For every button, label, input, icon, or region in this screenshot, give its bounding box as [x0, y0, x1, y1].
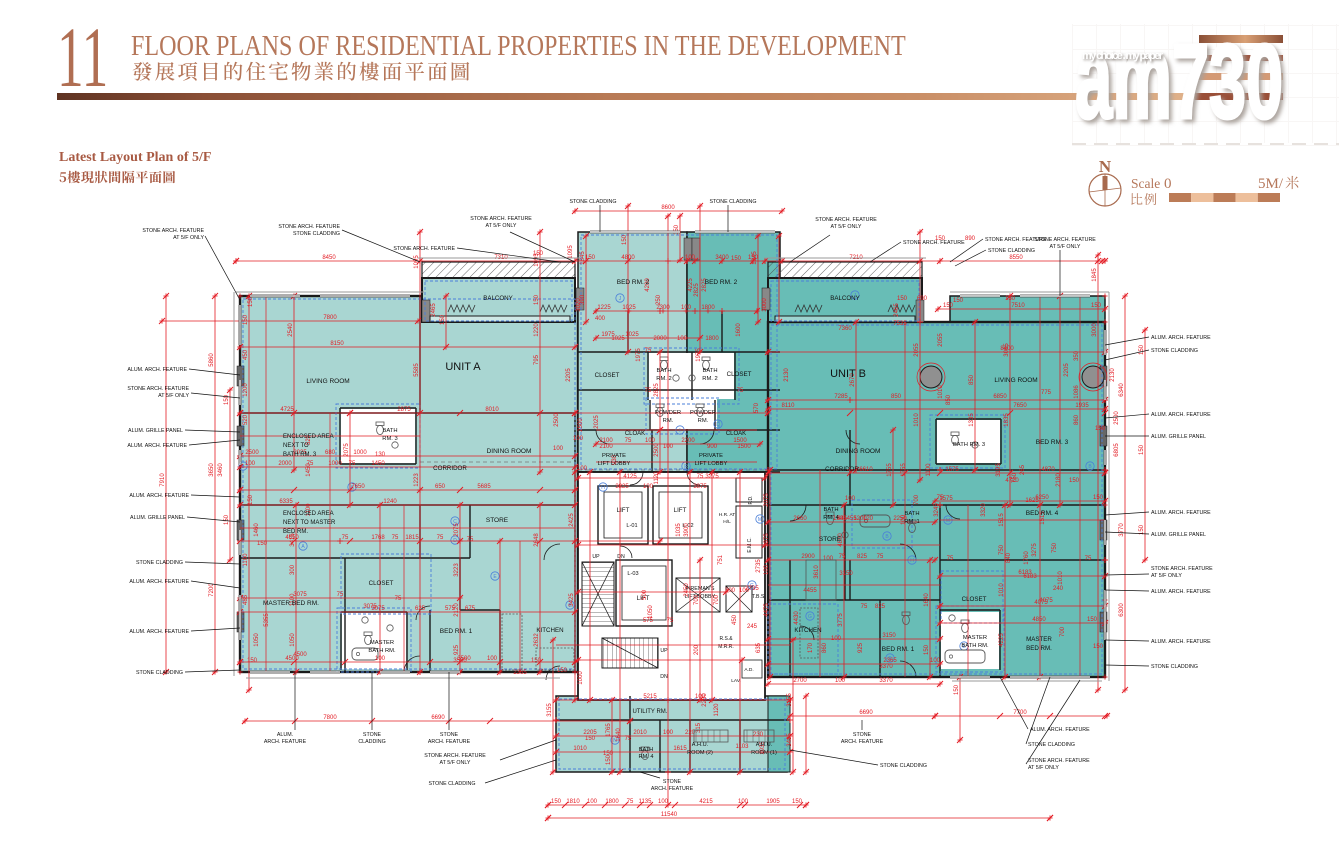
svg-text:825: 825 — [857, 554, 868, 560]
svg-text:4125: 4125 — [623, 474, 637, 480]
svg-text:ALUM. GRILLE PANEL: ALUM. GRILLE PANEL — [130, 515, 185, 521]
svg-text:1640: 1640 — [924, 593, 930, 607]
svg-text:H: H — [601, 485, 605, 491]
svg-text:850: 850 — [946, 394, 952, 405]
svg-text:890: 890 — [965, 236, 976, 242]
svg-text:CLADDING: CLADDING — [358, 739, 385, 745]
svg-text:H: H — [910, 558, 914, 564]
svg-text:2205: 2205 — [583, 730, 597, 736]
svg-text:485: 485 — [243, 594, 249, 605]
svg-text:NEXT TO: NEXT TO — [283, 443, 309, 449]
svg-text:7510: 7510 — [1011, 303, 1025, 309]
svg-text:T.B.S.: T.B.S. — [752, 594, 766, 600]
svg-text:1025: 1025 — [611, 336, 625, 342]
svg-text:7800: 7800 — [323, 715, 337, 721]
svg-text:5685: 5685 — [477, 484, 491, 490]
svg-text:3150: 3150 — [882, 633, 896, 639]
svg-text:1035: 1035 — [676, 523, 682, 537]
svg-text:315: 315 — [696, 722, 702, 733]
svg-text:3650: 3650 — [209, 463, 215, 477]
svg-text:700: 700 — [914, 494, 920, 505]
svg-text:STONE CLADDING: STONE CLADDING — [136, 670, 183, 676]
svg-text:1000: 1000 — [578, 671, 584, 685]
svg-text:100: 100 — [764, 564, 770, 575]
svg-text:2000: 2000 — [653, 336, 667, 342]
svg-text:MASTER: MASTER — [1026, 636, 1052, 643]
svg-text:3770: 3770 — [1119, 523, 1125, 537]
svg-text:1975: 1975 — [696, 348, 702, 362]
svg-text:ALUM. ARCH. FEATURE: ALUM. ARCH. FEATURE — [129, 493, 189, 499]
svg-text:750: 750 — [1052, 542, 1058, 553]
svg-text:H/L: H/L — [723, 519, 731, 525]
svg-text:6805: 6805 — [1114, 443, 1120, 457]
svg-text:4720: 4720 — [1005, 478, 1019, 484]
svg-text:2250: 2250 — [702, 693, 708, 707]
svg-text:RM. 2: RM. 2 — [702, 376, 717, 382]
svg-text:100: 100 — [587, 799, 598, 805]
svg-text:450: 450 — [243, 349, 249, 360]
svg-text:1335: 1335 — [969, 413, 975, 427]
svg-text:STONE CLADDING: STONE CLADDING — [1151, 348, 1198, 354]
svg-text:RM. 2: RM. 2 — [656, 376, 671, 382]
svg-text:6340: 6340 — [1119, 383, 1125, 397]
svg-text:150: 150 — [1093, 644, 1104, 650]
svg-text:7650: 7650 — [1013, 403, 1027, 409]
svg-text:6300: 6300 — [1119, 603, 1125, 617]
svg-text:860: 860 — [822, 642, 828, 653]
svg-text:1220: 1220 — [534, 323, 540, 337]
svg-text:675: 675 — [465, 606, 476, 612]
svg-text:75: 75 — [645, 388, 652, 394]
svg-text:A.D.: A.D. — [744, 667, 753, 673]
svg-text:1500: 1500 — [733, 438, 747, 444]
svg-text:STORE: STORE — [486, 517, 509, 524]
svg-text:1200: 1200 — [243, 383, 249, 397]
svg-text:8110: 8110 — [782, 403, 796, 409]
svg-text:75: 75 — [947, 556, 954, 562]
svg-text:LIVING ROOM: LIVING ROOM — [994, 377, 1037, 384]
svg-text:570: 570 — [754, 402, 760, 413]
svg-text:STONE ARCH. FEATURE: STONE ARCH. FEATURE — [1034, 237, 1096, 243]
svg-text:100: 100 — [738, 799, 749, 805]
svg-text:900: 900 — [707, 444, 718, 450]
svg-text:BED RM. 2: BED RM. 2 — [617, 279, 650, 286]
svg-text:NEXT TO MASTER: NEXT TO MASTER — [283, 520, 336, 526]
svg-text:4215: 4215 — [699, 799, 713, 805]
svg-text:BATH: BATH — [639, 747, 654, 753]
svg-text:1000: 1000 — [353, 450, 367, 456]
svg-text:STONE CLADDING: STONE CLADDING — [570, 199, 617, 205]
svg-text:AT 5/F ONLY: AT 5/F ONLY — [158, 393, 189, 399]
svg-text:3223: 3223 — [454, 563, 460, 577]
svg-text:4725: 4725 — [280, 407, 294, 413]
svg-text:1095: 1095 — [568, 245, 574, 259]
svg-text:7200: 7200 — [209, 583, 215, 597]
svg-text:75: 75 — [697, 474, 704, 480]
svg-text:STONE ARCH. FEATURE: STONE ARCH. FEATURE — [278, 224, 340, 230]
svg-text:1640: 1640 — [616, 728, 622, 742]
svg-text:1575: 1575 — [945, 467, 959, 473]
svg-text:1010: 1010 — [938, 385, 944, 399]
svg-text:2075: 2075 — [454, 523, 460, 537]
svg-text:STONE: STONE — [363, 732, 382, 738]
svg-text:M: M — [946, 518, 950, 524]
svg-text:5860: 5860 — [209, 353, 215, 367]
svg-text:2500: 2500 — [245, 450, 259, 456]
svg-text:2500: 2500 — [554, 413, 560, 427]
svg-text:LAV.: LAV. — [731, 678, 741, 684]
svg-text:300: 300 — [290, 564, 296, 575]
svg-text:2500: 2500 — [1114, 411, 1120, 425]
svg-text:75: 75 — [861, 604, 868, 610]
svg-text:4455: 4455 — [803, 588, 817, 594]
svg-text:4225: 4225 — [999, 633, 1005, 647]
svg-text:STONE CLADDING: STONE CLADDING — [1028, 742, 1075, 748]
svg-text:4870: 4870 — [1041, 467, 1055, 473]
svg-text:100: 100 — [487, 656, 498, 662]
svg-text:150: 150 — [247, 658, 258, 664]
svg-text:L-03: L-03 — [627, 571, 638, 577]
svg-text:2055: 2055 — [938, 333, 944, 347]
svg-text:STORE: STORE — [819, 536, 842, 543]
svg-text:3000: 3000 — [762, 298, 768, 312]
svg-text:1000: 1000 — [328, 461, 342, 467]
svg-text:150: 150 — [224, 394, 230, 405]
svg-text:75: 75 — [395, 596, 402, 602]
svg-text:ARCH. FEATURE: ARCH. FEATURE — [651, 786, 694, 792]
svg-text:BATH RM.: BATH RM. — [961, 643, 989, 649]
svg-text:150: 150 — [440, 314, 446, 325]
svg-text:650: 650 — [435, 484, 446, 490]
svg-text:H.R. AT: H.R. AT — [719, 512, 736, 518]
svg-text:STONE: STONE — [663, 779, 682, 785]
svg-text:R.S.&: R.S.& — [719, 636, 733, 642]
svg-text:ARCH. FEATURE: ARCH. FEATURE — [841, 739, 884, 745]
svg-text:1760: 1760 — [1024, 551, 1030, 565]
svg-text:75: 75 — [467, 537, 474, 543]
svg-text:1050: 1050 — [648, 605, 654, 619]
svg-text:1755: 1755 — [887, 463, 893, 477]
svg-text:150: 150 — [533, 251, 544, 257]
svg-text:BED RM. 3: BED RM. 3 — [1036, 439, 1069, 446]
svg-text:120: 120 — [863, 516, 874, 522]
svg-text:POWDER: POWDER — [690, 410, 716, 416]
svg-text:1905: 1905 — [766, 799, 780, 805]
svg-text:3245: 3245 — [934, 503, 940, 517]
svg-text:RM.: RM. — [698, 418, 709, 424]
svg-text:I: I — [679, 428, 680, 434]
svg-text:700: 700 — [1060, 626, 1066, 637]
svg-text:400: 400 — [595, 316, 606, 322]
svg-text:BATH: BATH — [382, 428, 397, 434]
svg-text:100: 100 — [245, 461, 256, 467]
svg-text:4500: 4500 — [293, 652, 307, 658]
svg-text:STONE ARCH. FEATURE: STONE ARCH. FEATURE — [1028, 758, 1090, 764]
svg-text:RM. 3: RM. 3 — [382, 436, 397, 442]
svg-text:3195: 3195 — [996, 463, 1002, 477]
svg-text:700: 700 — [714, 594, 720, 605]
svg-text:3485: 3485 — [787, 733, 793, 747]
svg-text:450: 450 — [732, 614, 738, 625]
svg-text:7285: 7285 — [834, 394, 848, 400]
svg-text:1810: 1810 — [566, 799, 580, 805]
svg-text:STONE CLADDING: STONE CLADDING — [429, 781, 476, 787]
svg-text:100: 100 — [645, 438, 656, 444]
svg-text:2700: 2700 — [793, 678, 807, 684]
svg-text:8010: 8010 — [485, 407, 499, 413]
svg-text:1103: 1103 — [736, 744, 750, 750]
svg-text:AT 5/F ONLY: AT 5/F ONLY — [1151, 573, 1182, 579]
svg-text:2660: 2660 — [793, 516, 807, 522]
svg-text:150: 150 — [248, 494, 254, 505]
svg-text:2055: 2055 — [914, 343, 920, 357]
svg-text:2500: 2500 — [578, 418, 584, 432]
svg-text:AT 5/F ONLY: AT 5/F ONLY — [1028, 765, 1059, 771]
svg-text:150: 150 — [897, 296, 908, 302]
svg-text:3000: 3000 — [1092, 323, 1098, 337]
svg-text:775: 775 — [1041, 390, 1052, 396]
svg-text:2075: 2075 — [344, 443, 350, 457]
svg-text:250: 250 — [656, 294, 662, 305]
svg-text:6690: 6690 — [859, 710, 873, 716]
svg-text:1800: 1800 — [705, 336, 719, 342]
svg-text:POWDER: POWDER — [655, 410, 681, 416]
svg-text:BATH RM.: BATH RM. — [368, 648, 396, 654]
svg-text:D: D — [716, 422, 720, 428]
svg-text:UNIT A: UNIT A — [445, 361, 481, 373]
svg-text:PRIVATE: PRIVATE — [699, 453, 723, 459]
svg-text:150: 150 — [1069, 478, 1080, 484]
svg-text:3075: 3075 — [363, 604, 377, 610]
svg-text:CLOSET: CLOSET — [962, 596, 987, 603]
svg-text:1225: 1225 — [597, 305, 611, 311]
svg-text:BATH: BATH — [702, 368, 717, 374]
svg-text:R: R — [684, 464, 688, 470]
svg-text:75: 75 — [342, 535, 349, 541]
svg-text:STONE ARCH. FEATURE: STONE ARCH. FEATURE — [1151, 566, 1213, 572]
svg-text:150: 150 — [557, 668, 568, 674]
svg-text:AT 5/F ONLY: AT 5/F ONLY — [440, 760, 471, 766]
svg-text:3065: 3065 — [1004, 343, 1010, 357]
svg-text:BED RM. 2: BED RM. 2 — [705, 279, 738, 286]
svg-text:751: 751 — [718, 554, 724, 565]
svg-text:CLOSET: CLOSET — [595, 372, 620, 379]
svg-text:6183: 6183 — [1023, 574, 1037, 580]
svg-text:LIFT: LIFT — [674, 507, 687, 514]
svg-text:2825: 2825 — [694, 283, 700, 297]
svg-text:AT 5/F ONLY: AT 5/F ONLY — [1050, 244, 1081, 250]
svg-text:STONE CLADDING: STONE CLADDING — [988, 248, 1035, 254]
svg-text:CLOAK: CLOAK — [726, 431, 746, 437]
svg-text:6335: 6335 — [279, 499, 293, 505]
svg-text:STONE CLADDING: STONE CLADDING — [293, 231, 340, 237]
svg-text:7360: 7360 — [838, 326, 852, 332]
svg-text:100: 100 — [577, 466, 588, 472]
svg-text:3370: 3370 — [879, 664, 893, 670]
svg-text:2632: 2632 — [534, 633, 540, 647]
svg-text:ALUM.: ALUM. — [277, 732, 293, 738]
svg-text:75: 75 — [337, 592, 344, 598]
svg-text:130: 130 — [375, 452, 386, 458]
svg-text:2900: 2900 — [801, 554, 815, 560]
svg-text:1768: 1768 — [371, 535, 385, 541]
svg-text:8550: 8550 — [1009, 255, 1023, 261]
svg-text:STONE ARCH. FEATURE: STONE ARCH. FEATURE — [127, 386, 189, 392]
svg-text:150: 150 — [1091, 303, 1102, 309]
svg-text:1845: 1845 — [1092, 268, 1098, 282]
svg-text:1450: 1450 — [306, 463, 312, 477]
svg-text:5215: 5215 — [643, 694, 657, 700]
svg-text:3900: 3900 — [684, 523, 690, 537]
svg-text:STONE ARCH. FEATURE: STONE ARCH. FEATURE — [393, 246, 455, 252]
svg-text:3155: 3155 — [547, 703, 553, 717]
svg-text:1800: 1800 — [605, 799, 619, 805]
svg-text:PRIVATE: PRIVATE — [602, 453, 626, 459]
svg-text:AT 5/F ONLY: AT 5/F ONLY — [831, 224, 862, 230]
svg-text:STONE ARCH. FEATURE: STONE ARCH. FEATURE — [470, 216, 532, 222]
svg-text:100: 100 — [930, 658, 941, 664]
svg-text:ALUM. GRILLE PANEL: ALUM. GRILLE PANEL — [1151, 434, 1206, 440]
svg-text:75: 75 — [877, 554, 884, 560]
svg-text:7800: 7800 — [323, 315, 337, 321]
svg-text:2465: 2465 — [894, 303, 900, 317]
svg-text:3155: 3155 — [787, 693, 793, 707]
svg-text:ROOM (2): ROOM (2) — [687, 750, 713, 756]
svg-text:75: 75 — [839, 554, 846, 560]
svg-text:A.H.U.: A.H.U. — [756, 742, 773, 748]
svg-text:3020: 3020 — [576, 298, 582, 312]
svg-text:1615: 1615 — [673, 746, 687, 752]
svg-text:230: 230 — [753, 732, 764, 738]
svg-text:1500: 1500 — [737, 444, 751, 450]
svg-text:CORRIDOR: CORRIDOR — [825, 466, 859, 473]
svg-text:1575: 1575 — [939, 496, 953, 502]
svg-text:825: 825 — [875, 604, 886, 610]
svg-text:3425: 3425 — [569, 593, 575, 607]
svg-text:UNIT B: UNIT B — [830, 368, 866, 380]
svg-text:7910: 7910 — [160, 473, 166, 487]
svg-text:CORRIDOR: CORRIDOR — [433, 465, 467, 472]
svg-text:840: 840 — [1006, 552, 1012, 563]
svg-text:BATH: BATH — [904, 511, 919, 517]
svg-text:750: 750 — [999, 544, 1005, 555]
svg-text:KITCHEN: KITCHEN — [536, 627, 563, 634]
svg-text:4850: 4850 — [1032, 617, 1046, 623]
svg-text:BED RM. 1: BED RM. 1 — [882, 646, 915, 653]
svg-text:ALUM. ARCH. FEATURE: ALUM. ARCH. FEATURE — [129, 629, 189, 635]
svg-text:6690: 6690 — [431, 715, 445, 721]
svg-text:STONE: STONE — [853, 732, 872, 738]
svg-text:850: 850 — [891, 394, 902, 400]
svg-text:ROOM (1): ROOM (1) — [751, 750, 777, 756]
svg-text:ALUM. ARCH. FEATURE: ALUM. ARCH. FEATURE — [1030, 727, 1090, 733]
svg-text:ARCH. FEATURE: ARCH. FEATURE — [264, 739, 307, 745]
svg-text:1010: 1010 — [914, 413, 920, 427]
svg-text:1010: 1010 — [999, 583, 1005, 597]
svg-text:AT 5/F ONLY: AT 5/F ONLY — [173, 235, 204, 241]
svg-text:150: 150 — [622, 234, 628, 245]
svg-text:575: 575 — [643, 618, 654, 624]
svg-text:925: 925 — [858, 642, 864, 653]
svg-text:3320: 3320 — [981, 503, 987, 517]
svg-text:3275: 3275 — [705, 474, 719, 480]
svg-text:4475: 4475 — [764, 603, 770, 617]
svg-text:STONE CLADDING: STONE CLADDING — [1151, 664, 1198, 670]
svg-text:2130: 2130 — [784, 368, 790, 382]
svg-text:ALUM. ARCH. FEATURE: ALUM. ARCH. FEATURE — [1151, 589, 1211, 595]
svg-text:8600: 8600 — [661, 205, 675, 211]
svg-text:DN: DN — [660, 674, 668, 680]
svg-text:635: 635 — [756, 642, 762, 653]
svg-text:6850: 6850 — [993, 394, 1007, 400]
svg-text:ENCLOSED AREA: ENCLOSED AREA — [283, 434, 334, 440]
svg-text:4225: 4225 — [688, 278, 694, 292]
svg-text:AT 5/F ONLY: AT 5/F ONLY — [486, 223, 517, 229]
svg-text:CLOAK: CLOAK — [625, 431, 645, 437]
svg-text:2825: 2825 — [654, 383, 660, 397]
svg-text:1100: 1100 — [926, 463, 932, 477]
svg-text:1625: 1625 — [1025, 498, 1039, 504]
svg-text:RM.: RM. — [663, 418, 674, 424]
svg-text:ALUM. ARCH. FEATURE: ALUM. ARCH. FEATURE — [127, 443, 187, 449]
svg-text:200: 200 — [694, 644, 700, 655]
svg-text:75: 75 — [737, 388, 744, 394]
svg-text:170: 170 — [808, 642, 814, 653]
svg-text:75: 75 — [437, 535, 444, 541]
svg-text:P.D.: P.D. — [748, 495, 754, 504]
svg-text:ALUM. ARCH. FEATURE: ALUM. ARCH. FEATURE — [1151, 335, 1211, 341]
svg-text:CLOSET: CLOSET — [727, 371, 752, 378]
svg-text:STONE CLADDING: STONE CLADDING — [136, 560, 183, 566]
svg-text:150: 150 — [224, 514, 230, 525]
svg-text:BATH RM. 3: BATH RM. 3 — [283, 452, 317, 458]
svg-text:ARCH. FEATURE: ARCH. FEATURE — [428, 739, 471, 745]
svg-text:ALUM. ARCH. FEATURE: ALUM. ARCH. FEATURE — [1151, 510, 1211, 516]
svg-text:1815: 1815 — [405, 535, 419, 541]
svg-text:1223: 1223 — [414, 473, 420, 487]
svg-text:BED RM.: BED RM. — [1026, 645, 1052, 652]
svg-text:150: 150 — [551, 799, 562, 805]
svg-text:RM. 4: RM. 4 — [823, 515, 839, 521]
svg-text:MASTER BED RM.: MASTER BED RM. — [263, 600, 319, 607]
svg-text:UP: UP — [592, 554, 600, 560]
svg-text:3610: 3610 — [814, 565, 820, 579]
svg-text:150: 150 — [248, 296, 254, 307]
svg-text:1050: 1050 — [254, 633, 260, 647]
svg-text:860: 860 — [1074, 414, 1080, 425]
svg-text:75: 75 — [625, 736, 632, 742]
svg-text:150: 150 — [603, 751, 614, 757]
svg-text:5355: 5355 — [264, 613, 270, 627]
svg-text:STONE CLADDING: STONE CLADDING — [880, 763, 927, 769]
svg-text:2735: 2735 — [745, 586, 759, 592]
svg-text:UP: UP — [660, 648, 668, 654]
svg-text:1100: 1100 — [243, 553, 249, 567]
svg-text:925: 925 — [454, 644, 460, 655]
svg-text:BATH: BATH — [656, 368, 671, 374]
svg-text:100: 100 — [573, 436, 584, 442]
svg-text:795: 795 — [534, 354, 540, 365]
svg-text:1600: 1600 — [736, 323, 742, 337]
svg-text:ALUM. ARCH. FEATURE: ALUM. ARCH. FEATURE — [129, 579, 189, 585]
svg-text:100: 100 — [845, 496, 856, 502]
svg-text:240: 240 — [1053, 586, 1064, 592]
svg-text:150: 150 — [1005, 296, 1016, 302]
svg-text:245: 245 — [747, 624, 758, 630]
svg-text:KITCHEN: KITCHEN — [794, 627, 821, 634]
svg-text:1765: 1765 — [606, 723, 612, 737]
svg-text:2648: 2648 — [534, 533, 540, 547]
